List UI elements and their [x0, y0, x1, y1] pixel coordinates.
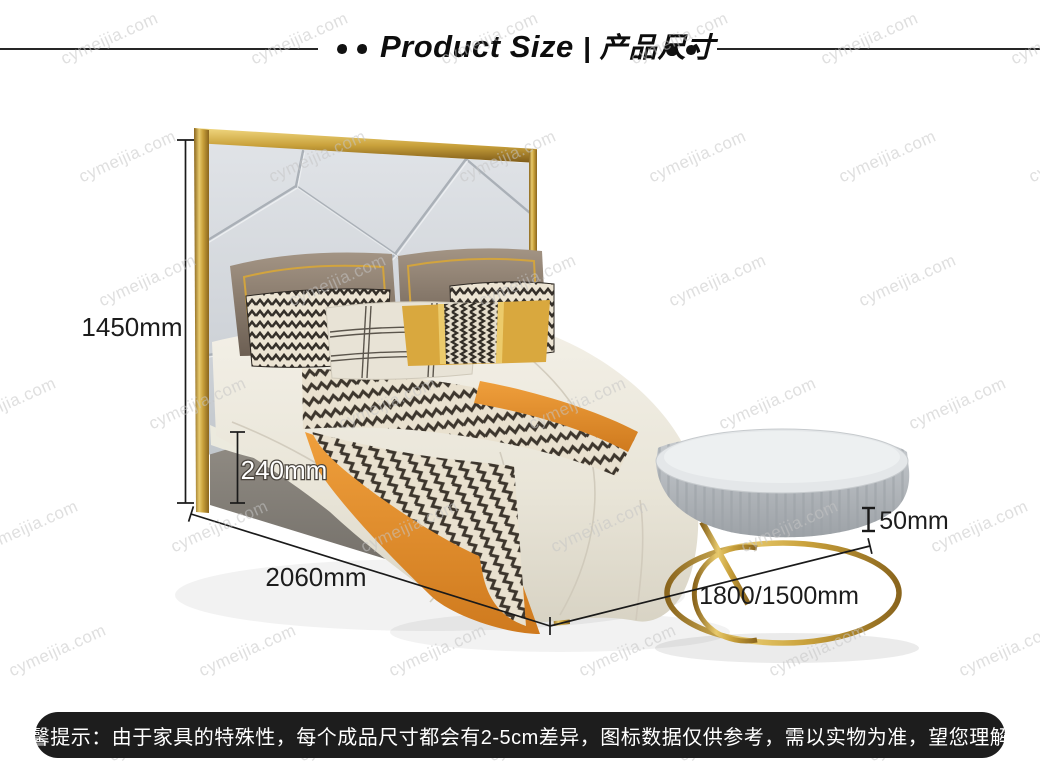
pillow-yellow-lumbar — [402, 300, 550, 366]
headboard-gold-frame-left — [194, 128, 209, 513]
pillows — [230, 248, 554, 379]
label-stool: 50mm — [879, 507, 948, 535]
label-base-height: 240mm — [241, 455, 328, 485]
label-overall-height: 1450mm — [81, 312, 182, 342]
label-width: 1800/1500mm — [699, 582, 859, 610]
product-size-illustration: 1450mm 240mm 2060mm 1800/1500mm 50mm — [0, 0, 1040, 780]
label-length: 2060mm — [265, 562, 366, 592]
notice-text: 温馨提示：由于家具的特殊性，每个成品尺寸都会有2-5cm差异，图标数据仅供参考，… — [9, 721, 1031, 750]
notice-bar: 温馨提示：由于家具的特殊性，每个成品尺寸都会有2-5cm差异，图标数据仅供参考，… — [35, 712, 1005, 758]
